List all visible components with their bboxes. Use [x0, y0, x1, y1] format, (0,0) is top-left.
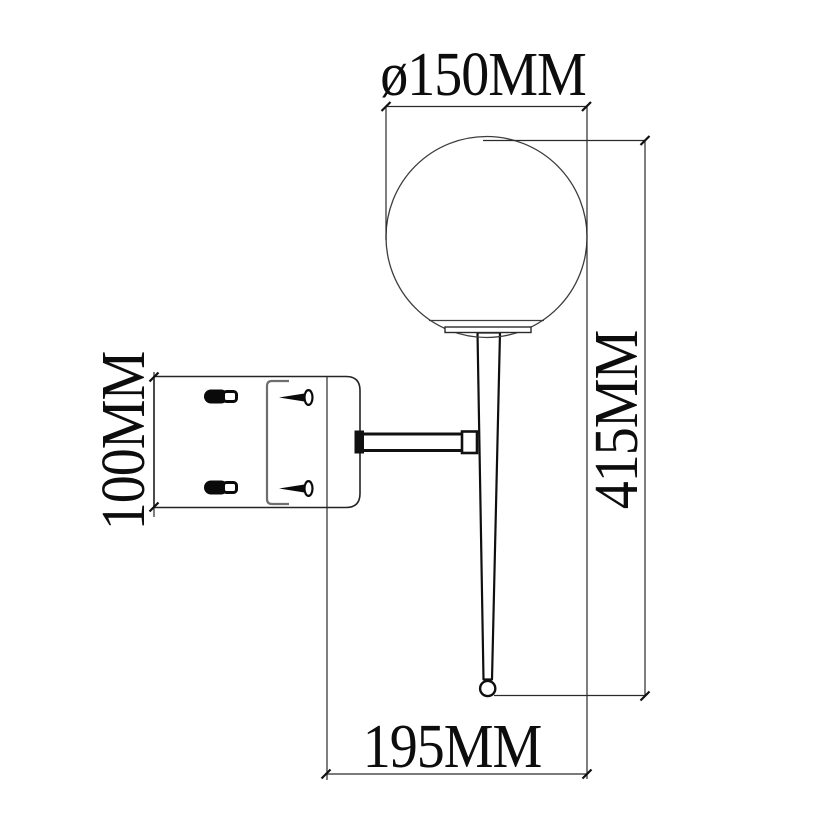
globe-outline: [386, 137, 587, 338]
drawing-canvas: ø150MM 415MM 195MM 100MM: [0, 0, 837, 837]
dim-label-diameter: ø150MM: [380, 44, 586, 107]
keyhole-slot-top: [204, 390, 237, 404]
dim-label-plate: 100MM: [93, 352, 156, 531]
dim-label-height: 415MM: [586, 331, 649, 510]
dim-label-depth: 195MM: [363, 716, 542, 779]
keyhole-slot-bottom: [204, 481, 237, 495]
lamp-stem-cone: [478, 333, 501, 680]
mount-bracket-body: [154, 377, 360, 508]
lamp-arm: [359, 434, 464, 451]
globe-collar-ring: [445, 327, 531, 333]
arm-connector: [462, 432, 477, 454]
stem-tip-ball: [480, 681, 495, 696]
arm-end-cap: [355, 431, 365, 454]
